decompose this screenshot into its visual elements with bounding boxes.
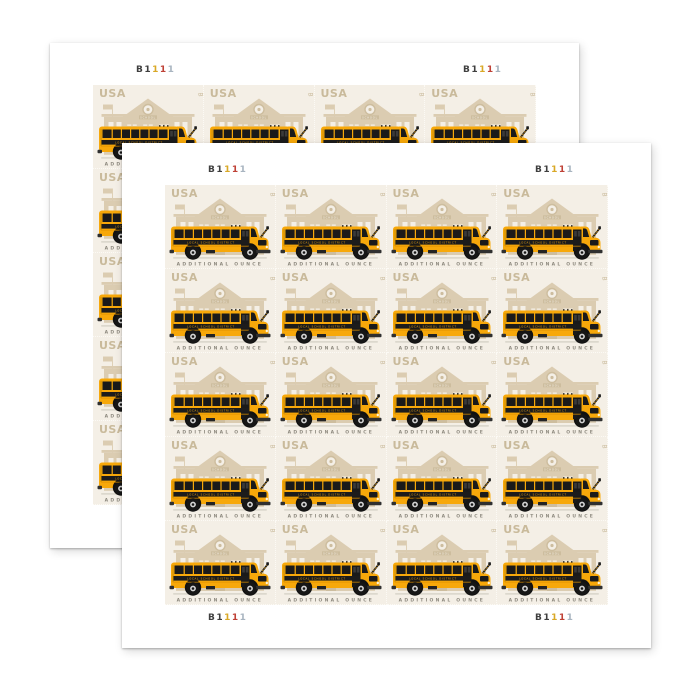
- school-sign-text: SCHOOL: [323, 551, 339, 555]
- stamp: USA B: [497, 437, 608, 521]
- stamp: USA B: [276, 437, 387, 521]
- bus-front-bumper: [586, 250, 603, 253]
- bus-side-text: LOCAL SCHOOL DISTRICT: [519, 409, 567, 413]
- bus-grille: [590, 576, 599, 582]
- bus-headlight: [598, 246, 600, 248]
- bus-fuel-tank: [206, 334, 215, 337]
- bus-fuel-tank: [428, 586, 437, 589]
- bus-headlight: [598, 498, 600, 500]
- bus-side-text: LOCAL SCHOOL DISTRICT: [298, 493, 346, 497]
- bus-headlight: [266, 498, 268, 500]
- bus-front-bumper: [476, 334, 493, 337]
- bus-side-text: LOCAL SCHOOL DISTRICT: [409, 409, 457, 413]
- bus-rear-bumper: [280, 502, 285, 505]
- additional-ounce-label: ADDITIONAL OUNCE: [497, 262, 607, 267]
- bus-rear-bumper: [98, 318, 103, 321]
- flag-icon: [103, 189, 112, 194]
- bus-side-text: LOCAL SCHOOL DISTRICT: [519, 241, 567, 245]
- school-bus-illustration: LOCAL SCHOOL DISTRICT: [391, 560, 493, 596]
- plate-digit: 1: [471, 65, 478, 75]
- bus-mirror-head: [377, 562, 380, 565]
- bus-grille: [258, 576, 267, 582]
- bus-mirror-head: [377, 310, 380, 313]
- bus-side-text: LOCAL SCHOOL DISTRICT: [187, 325, 235, 329]
- bus-side-text: LOCAL SCHOOL DISTRICT: [187, 241, 235, 245]
- additional-ounce-label: ADDITIONAL OUNCE: [497, 346, 607, 351]
- plate-digit: 1: [232, 613, 239, 623]
- bus-rear-bumper: [98, 486, 103, 489]
- additional-ounce-label: ADDITIONAL OUNCE: [165, 430, 275, 435]
- bus-rear-bumper: [280, 586, 285, 589]
- plate-digit: B: [208, 165, 215, 175]
- bus-fuel-tank: [538, 334, 547, 337]
- bus-side-text: LOCAL SCHOOL DISTRICT: [298, 325, 346, 329]
- additional-ounce-label: ADDITIONAL OUNCE: [165, 514, 275, 519]
- bus-grille: [480, 240, 489, 246]
- bus-side-text: LOCAL SCHOOL DISTRICT: [187, 493, 235, 497]
- school-sign-text: SCHOOL: [434, 215, 450, 219]
- flag-icon: [286, 289, 295, 294]
- bus-front-bumper: [365, 418, 382, 421]
- stamp: USA B: [165, 521, 276, 605]
- school-sign-text: SCHOOL: [544, 551, 560, 555]
- plate-digit: B: [535, 165, 542, 175]
- bus-grille: [369, 240, 378, 246]
- bus-side-text: LOCAL SCHOOL DISTRICT: [409, 325, 457, 329]
- school-sign-text: SCHOOL: [434, 383, 450, 387]
- bus-side-text: LOCAL SCHOOL DISTRICT: [409, 493, 457, 497]
- plate-digit: 1: [551, 613, 558, 623]
- school-sign-text: SCHOOL: [251, 115, 267, 119]
- school-sign-text: SCHOOL: [323, 383, 339, 387]
- school-bus-illustration: LOCAL SCHOOL DISTRICT: [501, 392, 603, 428]
- plate-number: B1111: [535, 165, 574, 175]
- bus-grille: [258, 324, 267, 330]
- bus-grille: [369, 408, 378, 414]
- stamp: USA B: [276, 353, 387, 437]
- flag-icon: [103, 105, 112, 110]
- bus-grille: [590, 492, 599, 498]
- plate-digit: 1: [479, 65, 486, 75]
- bus-front-bumper: [365, 586, 382, 589]
- bus-rear-bumper: [391, 334, 396, 337]
- school-bus-illustration: LOCAL SCHOOL DISTRICT: [169, 392, 271, 428]
- bus-grille: [480, 324, 489, 330]
- stamp: USA B: [387, 269, 498, 353]
- plate-digit: B: [136, 65, 143, 75]
- bus-side-text: LOCAL SCHOOL DISTRICT: [409, 577, 457, 581]
- school-sign-text: SCHOOL: [323, 299, 339, 303]
- flag-icon: [397, 457, 406, 462]
- bus-side-text: LOCAL SCHOOL DISTRICT: [187, 577, 235, 581]
- school-sign-text: SCHOOL: [323, 467, 339, 471]
- bus-mirror-head: [488, 562, 491, 565]
- school-bus-illustration: LOCAL SCHOOL DISTRICT: [280, 392, 382, 428]
- scene: B1111 B1111 B1111 B1111 USA B: [0, 0, 700, 700]
- bus-front-bumper: [254, 586, 271, 589]
- flag-icon: [397, 205, 406, 210]
- plate-digit: 1: [559, 165, 566, 175]
- bus-mirror-head: [488, 226, 491, 229]
- plate-digit: 1: [551, 165, 558, 175]
- bus-mirror-head: [194, 126, 197, 129]
- bus-grille: [480, 576, 489, 582]
- plate-digit: 1: [152, 65, 159, 75]
- bus-mirror-head: [266, 310, 269, 313]
- bus-rear-bumper: [280, 334, 285, 337]
- plate-digit: 1: [168, 65, 175, 75]
- plate-digit: 1: [144, 65, 151, 75]
- bus-mirror-head: [599, 394, 602, 397]
- bus-side-text: LOCAL SCHOOL DISTRICT: [187, 409, 235, 413]
- bus-fuel-tank: [206, 586, 215, 589]
- bus-headlight: [487, 330, 489, 332]
- bus-fuel-tank: [538, 586, 547, 589]
- school-sign-text: SCHOOL: [544, 467, 560, 471]
- flag-icon: [286, 373, 295, 378]
- bus-mirror-head: [488, 394, 491, 397]
- school-sign-text: SCHOOL: [323, 215, 339, 219]
- flag-icon: [507, 205, 516, 210]
- stamp-grid: USA B: [165, 185, 608, 605]
- bus-front-bumper: [586, 334, 603, 337]
- bus-grille: [258, 408, 267, 414]
- bus-front-bumper: [254, 334, 271, 337]
- stamp-sheet-front: B1111 B1111 B1111 B1111 USA B: [122, 143, 651, 648]
- bus-side-text: LOCAL SCHOOL DISTRICT: [519, 577, 567, 581]
- plate-digit: 1: [495, 65, 502, 75]
- school-bus-illustration: LOCAL SCHOOL DISTRICT: [169, 308, 271, 344]
- additional-ounce-label: ADDITIONAL OUNCE: [497, 514, 607, 519]
- bus-grille: [369, 576, 378, 582]
- bus-grille: [590, 324, 599, 330]
- plate-digit: 1: [216, 165, 223, 175]
- school-sign-text: SCHOOL: [544, 215, 560, 219]
- bus-front-bumper: [586, 502, 603, 505]
- additional-ounce-label: ADDITIONAL OUNCE: [276, 598, 386, 603]
- bus-grille: [480, 408, 489, 414]
- plate-digit: B: [208, 613, 215, 623]
- flag-icon: [435, 105, 444, 110]
- plate-digit: 1: [567, 613, 574, 623]
- school-bus-illustration: LOCAL SCHOOL DISTRICT: [501, 224, 603, 260]
- stamp: USA B: [497, 185, 608, 269]
- bus-rear-bumper: [502, 418, 507, 421]
- school-bus-illustration: LOCAL SCHOOL DISTRICT: [501, 476, 603, 512]
- bus-fuel-tank: [428, 250, 437, 253]
- bus-headlight: [266, 582, 268, 584]
- bus-front-bumper: [254, 502, 271, 505]
- school-sign-text: SCHOOL: [140, 115, 156, 119]
- plate-number: B1111: [463, 65, 502, 75]
- school-sign-text: SCHOOL: [212, 467, 228, 471]
- bus-mirror-head: [266, 478, 269, 481]
- plate-digit: 1: [567, 165, 574, 175]
- plate-number: B1111: [208, 613, 247, 623]
- bus-rear-bumper: [170, 586, 175, 589]
- bus-rear-bumper: [170, 334, 175, 337]
- additional-ounce-label: ADDITIONAL OUNCE: [276, 346, 386, 351]
- bus-front-bumper: [254, 250, 271, 253]
- plate-digit: 1: [543, 613, 550, 623]
- plate-digit: 1: [160, 65, 167, 75]
- school-bus-illustration: LOCAL SCHOOL DISTRICT: [280, 224, 382, 260]
- bus-side-text: LOCAL SCHOOL DISTRICT: [409, 241, 457, 245]
- stamp: USA B: [276, 269, 387, 353]
- additional-ounce-label: ADDITIONAL OUNCE: [165, 262, 275, 267]
- bus-fuel-tank: [538, 418, 547, 421]
- flag-icon: [175, 457, 184, 462]
- bus-front-bumper: [365, 502, 382, 505]
- bus-fuel-tank: [317, 502, 326, 505]
- stamp: USA B: [276, 185, 387, 269]
- bus-mirror-head: [377, 478, 380, 481]
- bus-fuel-tank: [538, 250, 547, 253]
- bus-fuel-tank: [317, 250, 326, 253]
- bus-mirror-head: [266, 394, 269, 397]
- school-sign-text: SCHOOL: [362, 115, 378, 119]
- school-bus-illustration: LOCAL SCHOOL DISTRICT: [169, 560, 271, 596]
- bus-headlight: [266, 414, 268, 416]
- bus-mirror-head: [377, 226, 380, 229]
- bus-rear-bumper: [98, 150, 103, 153]
- flag-icon: [103, 357, 112, 362]
- school-bus-illustration: LOCAL SCHOOL DISTRICT: [501, 308, 603, 344]
- bus-mirror-head: [599, 478, 602, 481]
- bus-headlight: [376, 330, 378, 332]
- bus-rear-bumper: [391, 586, 396, 589]
- flag-icon: [397, 373, 406, 378]
- additional-ounce-label: ADDITIONAL OUNCE: [387, 262, 497, 267]
- stamp: USA B: [276, 521, 387, 605]
- additional-ounce-label: ADDITIONAL OUNCE: [276, 262, 386, 267]
- bus-fuel-tank: [206, 250, 215, 253]
- bus-fuel-tank: [206, 502, 215, 505]
- flag-icon: [103, 441, 112, 446]
- plate-digit: 1: [240, 613, 247, 623]
- bus-headlight: [376, 246, 378, 248]
- stamp: USA B: [497, 353, 608, 437]
- stamp: USA B: [387, 353, 498, 437]
- bus-mirror-head: [599, 562, 602, 565]
- plate-digit: 1: [216, 613, 223, 623]
- bus-front-bumper: [476, 502, 493, 505]
- bus-grille: [258, 492, 267, 498]
- stamp: USA B: [387, 185, 498, 269]
- plate-digit: B: [463, 65, 470, 75]
- school-sign-text: SCHOOL: [434, 299, 450, 303]
- additional-ounce-label: ADDITIONAL OUNCE: [497, 430, 607, 435]
- bus-front-bumper: [476, 418, 493, 421]
- school-bus-illustration: LOCAL SCHOOL DISTRICT: [391, 224, 493, 260]
- flag-icon: [175, 205, 184, 210]
- flag-icon: [507, 541, 516, 546]
- bus-headlight: [376, 414, 378, 416]
- bus-rear-bumper: [98, 402, 103, 405]
- bus-front-bumper: [586, 586, 603, 589]
- stamp: USA B: [387, 437, 498, 521]
- bus-fuel-tank: [428, 418, 437, 421]
- bus-headlight: [487, 246, 489, 248]
- flag-icon: [286, 541, 295, 546]
- stamp: USA B: [165, 269, 276, 353]
- bus-headlight: [266, 330, 268, 332]
- bus-headlight: [487, 414, 489, 416]
- bus-rear-bumper: [170, 250, 175, 253]
- bus-front-bumper: [254, 418, 271, 421]
- stamp: USA B: [165, 437, 276, 521]
- bus-grille: [590, 240, 599, 246]
- bus-grille: [369, 492, 378, 498]
- flag-icon: [103, 273, 112, 278]
- bus-rear-bumper: [502, 334, 507, 337]
- plate-digit: 1: [224, 613, 231, 623]
- bus-mirror-head: [488, 478, 491, 481]
- school-bus-illustration: LOCAL SCHOOL DISTRICT: [391, 308, 493, 344]
- school-sign-text: SCHOOL: [434, 467, 450, 471]
- bus-rear-bumper: [391, 502, 396, 505]
- bus-mirror-head: [305, 126, 308, 129]
- bus-grille: [480, 492, 489, 498]
- bus-grille: [369, 324, 378, 330]
- school-bus-illustration: LOCAL SCHOOL DISTRICT: [169, 476, 271, 512]
- school-sign-text: SCHOOL: [212, 551, 228, 555]
- flag-icon: [286, 457, 295, 462]
- bus-mirror-head: [488, 310, 491, 313]
- bus-headlight: [598, 414, 600, 416]
- bus-fuel-tank: [317, 586, 326, 589]
- additional-ounce-label: ADDITIONAL OUNCE: [165, 346, 275, 351]
- plate-digit: 1: [224, 165, 231, 175]
- bus-front-bumper: [586, 418, 603, 421]
- plate-digit: 1: [232, 165, 239, 175]
- plate-digit: 1: [240, 165, 247, 175]
- bus-side-text: LOCAL SCHOOL DISTRICT: [298, 409, 346, 413]
- plate-digit: B: [535, 613, 542, 623]
- school-bus-illustration: LOCAL SCHOOL DISTRICT: [280, 308, 382, 344]
- plate-number: B1111: [208, 165, 247, 175]
- bus-side-text: LOCAL SCHOOL DISTRICT: [519, 493, 567, 497]
- bus-grille: [258, 240, 267, 246]
- bus-mirror-head: [377, 394, 380, 397]
- additional-ounce-label: ADDITIONAL OUNCE: [165, 598, 275, 603]
- additional-ounce-label: ADDITIONAL OUNCE: [497, 598, 607, 603]
- flag-icon: [507, 289, 516, 294]
- school-sign-text: SCHOOL: [472, 115, 488, 119]
- school-sign-text: SCHOOL: [544, 383, 560, 387]
- school-bus-illustration: LOCAL SCHOOL DISTRICT: [391, 476, 493, 512]
- bus-rear-bumper: [170, 502, 175, 505]
- bus-side-text: LOCAL SCHOOL DISTRICT: [519, 325, 567, 329]
- school-sign-text: SCHOOL: [434, 551, 450, 555]
- bus-fuel-tank: [206, 418, 215, 421]
- bus-front-bumper: [476, 586, 493, 589]
- flag-icon: [507, 373, 516, 378]
- bus-side-text: LOCAL SCHOOL DISTRICT: [298, 577, 346, 581]
- bus-fuel-tank: [428, 502, 437, 505]
- plate-number: B1111: [136, 65, 175, 75]
- stamp: USA B: [165, 185, 276, 269]
- bus-front-bumper: [476, 250, 493, 253]
- bus-headlight: [376, 582, 378, 584]
- bus-mirror-head: [416, 126, 419, 129]
- school-bus-illustration: LOCAL SCHOOL DISTRICT: [391, 392, 493, 428]
- bus-fuel-tank: [538, 502, 547, 505]
- bus-headlight: [598, 330, 600, 332]
- school-bus-illustration: LOCAL SCHOOL DISTRICT: [169, 224, 271, 260]
- bus-mirror-head: [527, 126, 530, 129]
- school-bus-illustration: LOCAL SCHOOL DISTRICT: [280, 560, 382, 596]
- additional-ounce-label: ADDITIONAL OUNCE: [387, 598, 497, 603]
- bus-rear-bumper: [98, 234, 103, 237]
- flag-icon: [397, 289, 406, 294]
- additional-ounce-label: ADDITIONAL OUNCE: [387, 430, 497, 435]
- bus-headlight: [487, 582, 489, 584]
- bus-rear-bumper: [280, 250, 285, 253]
- bus-mirror-head: [266, 562, 269, 565]
- flag-icon: [507, 457, 516, 462]
- bus-fuel-tank: [317, 334, 326, 337]
- bus-headlight: [487, 498, 489, 500]
- bus-grille: [590, 408, 599, 414]
- flag-icon: [175, 289, 184, 294]
- school-sign-text: SCHOOL: [212, 383, 228, 387]
- stamp: USA B: [387, 521, 498, 605]
- flag-icon: [286, 205, 295, 210]
- bus-mirror-head: [266, 226, 269, 229]
- bus-rear-bumper: [502, 586, 507, 589]
- school-sign-text: SCHOOL: [212, 215, 228, 219]
- school-sign-text: SCHOOL: [544, 299, 560, 303]
- bus-fuel-tank: [317, 418, 326, 421]
- stamp: USA B: [165, 353, 276, 437]
- additional-ounce-label: ADDITIONAL OUNCE: [276, 514, 386, 519]
- school-sign-text: SCHOOL: [212, 299, 228, 303]
- bus-rear-bumper: [280, 418, 285, 421]
- bus-side-text: LOCAL SCHOOL DISTRICT: [298, 241, 346, 245]
- bus-rear-bumper: [502, 250, 507, 253]
- bus-rear-bumper: [170, 418, 175, 421]
- bus-headlight: [376, 498, 378, 500]
- plate-number: B1111: [535, 613, 574, 623]
- bus-rear-bumper: [502, 502, 507, 505]
- bus-front-bumper: [365, 334, 382, 337]
- additional-ounce-label: ADDITIONAL OUNCE: [276, 430, 386, 435]
- flag-icon: [175, 373, 184, 378]
- school-bus-illustration: LOCAL SCHOOL DISTRICT: [280, 476, 382, 512]
- flag-icon: [325, 105, 334, 110]
- bus-headlight: [598, 582, 600, 584]
- flag-icon: [214, 105, 223, 110]
- plate-digit: 1: [559, 613, 566, 623]
- bus-rear-bumper: [391, 418, 396, 421]
- plate-digit: 1: [487, 65, 494, 75]
- bus-headlight: [266, 246, 268, 248]
- bus-rear-bumper: [391, 250, 396, 253]
- stamp: USA B: [497, 269, 608, 353]
- stamp: USA B: [497, 521, 608, 605]
- bus-mirror-head: [599, 226, 602, 229]
- flag-icon: [175, 541, 184, 546]
- plate-digit: 1: [543, 165, 550, 175]
- bus-front-bumper: [365, 250, 382, 253]
- additional-ounce-label: ADDITIONAL OUNCE: [387, 346, 497, 351]
- flag-icon: [397, 541, 406, 546]
- additional-ounce-label: ADDITIONAL OUNCE: [387, 514, 497, 519]
- bus-fuel-tank: [428, 334, 437, 337]
- school-bus-illustration: LOCAL SCHOOL DISTRICT: [501, 560, 603, 596]
- bus-mirror-head: [599, 310, 602, 313]
